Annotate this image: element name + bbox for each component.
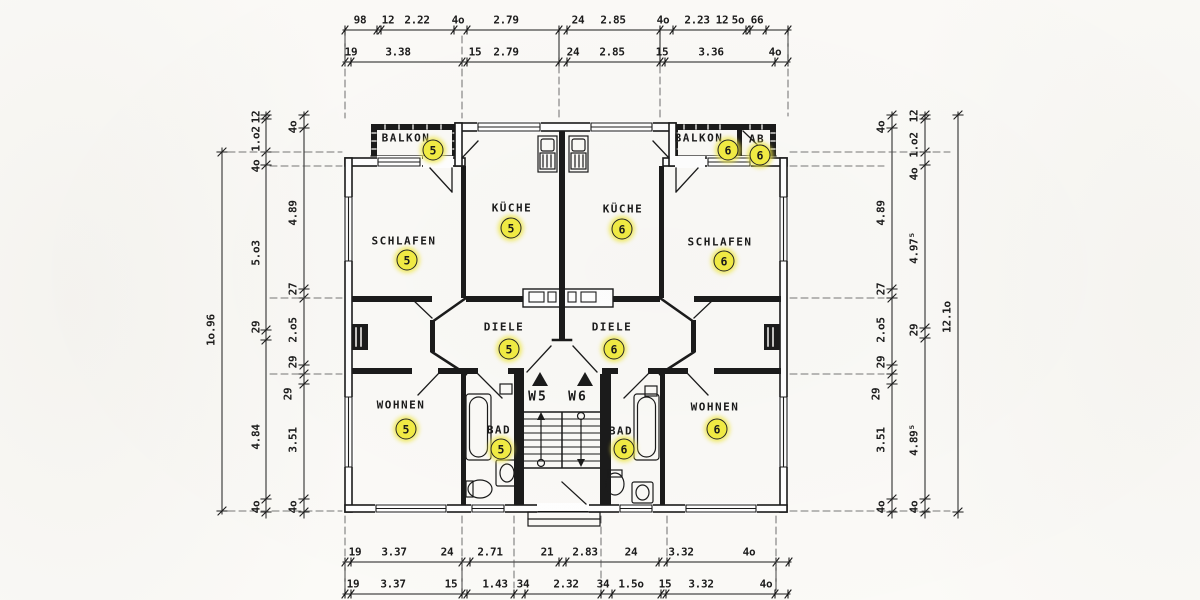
dim-label: 15 [445, 578, 458, 591]
dim-label: 29 [250, 321, 263, 334]
room-label-diele-6: DIELE [592, 321, 633, 334]
dim-label: 24 [572, 14, 585, 27]
unit-badge-kueche-6: 6 [612, 219, 633, 240]
apartment-door-label-w5: W5 [528, 390, 548, 405]
unit-badge-balkon-5: 5 [423, 140, 444, 161]
dim-label: 3.37 [380, 578, 405, 591]
dim-label: 3.32 [668, 546, 693, 559]
dim-label: 4o [760, 578, 773, 591]
dim-label: 2.o5 [287, 317, 300, 342]
floorplan-drawing [0, 0, 1200, 600]
dim-label: 2.32 [553, 578, 578, 591]
dim-label: 4o [908, 501, 921, 514]
dim-label: 1.o2 [250, 126, 263, 151]
dim-label: 2.83 [572, 546, 597, 559]
dim-label: 12 [716, 14, 729, 27]
dim-label: 34 [517, 578, 530, 591]
shaft-block [523, 289, 613, 307]
dim-label: 12 [908, 110, 921, 123]
unit-badge-diele-6: 6 [604, 339, 625, 360]
dim-label: 4o [250, 160, 263, 173]
floorplan-sheet: BALKON 5 BALKON 6 AB 6 SCHLAFEN 5 KÜCHE … [0, 0, 1200, 600]
dim-label: 15 [469, 46, 482, 59]
interior-walls [352, 131, 781, 505]
dim-label: 29 [282, 388, 295, 401]
unit-badge-schlafen-6: 6 [714, 251, 735, 272]
dim-label: 4.89 [287, 200, 300, 225]
dim-label: 21 [541, 546, 554, 559]
dim-label: 29 [875, 356, 888, 369]
dim-label: 4o [875, 121, 888, 134]
entrance-arrow-w6 [577, 372, 593, 386]
dim-label: 4o [743, 546, 756, 559]
room-label-balkon-6: BALKON [675, 132, 724, 145]
dim-label: 4o [908, 168, 921, 181]
dim-label: 3.32 [688, 578, 713, 591]
dim-label: 2.79 [493, 14, 518, 27]
dim-label: 3.38 [385, 46, 410, 59]
dim-label: 1.5o [618, 578, 643, 591]
room-label-kueche-6: KÜCHE [603, 203, 644, 216]
dim-label: 4o [875, 501, 888, 514]
dim-label: 4o [287, 501, 300, 514]
dim-label: 4.97⁵ [908, 232, 921, 264]
dim-label: 4o [657, 14, 670, 27]
dim-label: 29 [287, 356, 300, 369]
dim-label: 29 [908, 324, 921, 337]
dim-label: 3.37 [381, 546, 406, 559]
dim-label: 4.89 [875, 200, 888, 225]
room-label-balkon-5: BALKON [382, 132, 431, 145]
dim-label: 2.o5 [875, 317, 888, 342]
dim-label: 98 [354, 14, 367, 27]
unit-badge-kueche-5: 5 [501, 218, 522, 239]
unit-badge-balkon-6: 6 [718, 140, 739, 161]
room-label-kueche-5: KÜCHE [492, 202, 533, 215]
dim-label: 3.51 [875, 427, 888, 452]
dim-label: 4o [287, 121, 300, 134]
dim-label: 15 [656, 46, 669, 59]
dim-label: 19 [349, 546, 362, 559]
dim-label: 29 [870, 388, 883, 401]
dim-label: 27 [287, 283, 300, 296]
dim-label: 24 [625, 546, 638, 559]
dim-label: 12 [250, 111, 263, 124]
dim-label: 66 [751, 14, 764, 27]
unit-badge-wohnen-6: 6 [707, 419, 728, 440]
dim-label: 1.43 [482, 578, 507, 591]
staircase [524, 412, 600, 468]
dim-label: 3.51 [287, 427, 300, 452]
dim-label: 2.85 [600, 14, 625, 27]
unit-badge-bad-6: 6 [614, 439, 635, 460]
dim-label: 4o [452, 14, 465, 27]
dim-label: 15 [659, 578, 672, 591]
dim-label: 4o [769, 46, 782, 59]
room-label-wohnen-6: WOHNEN [691, 401, 740, 414]
unit-badge-diele-5: 5 [499, 339, 520, 360]
dim-label: 27 [875, 283, 888, 296]
room-label-schlafen-6: SCHLAFEN [688, 236, 753, 249]
room-label-wohnen-5: WOHNEN [377, 399, 426, 412]
windows [343, 121, 789, 514]
dim-label: 19 [345, 46, 358, 59]
apartment-door-label-w6: W6 [568, 390, 588, 405]
dim-label: 1o.96 [205, 314, 218, 346]
dim-label: 2.85 [599, 46, 624, 59]
room-label-schlafen-5: SCHLAFEN [372, 235, 437, 248]
room-label-diele-5: DIELE [484, 321, 525, 334]
unit-badge-ab-6: 6 [750, 145, 771, 166]
dim-label: 1.o2 [908, 132, 921, 157]
dim-label: 2.71 [477, 546, 502, 559]
dim-label: 24 [567, 46, 580, 59]
dim-label: 5.o3 [250, 240, 263, 265]
dim-label: 2.79 [493, 46, 518, 59]
dim-label: 3.36 [698, 46, 723, 59]
dim-label: 12 [382, 14, 395, 27]
dim-label: 2.23 [684, 14, 709, 27]
dim-label: 5o [732, 14, 745, 27]
room-label-ab-6: AB [749, 133, 765, 146]
dim-label: 4.84 [250, 424, 263, 449]
unit-badge-schlafen-5: 5 [397, 250, 418, 271]
dim-label: 19 [347, 578, 360, 591]
unit-badge-wohnen-5: 5 [396, 419, 417, 440]
dim-label: 4.89⁵ [908, 424, 921, 456]
dim-label: 34 [597, 578, 610, 591]
entrance-arrow-w5 [532, 372, 548, 386]
unit-badge-bad-5: 5 [491, 439, 512, 460]
dim-label: 2.22 [404, 14, 429, 27]
entrance-stoop [528, 512, 600, 526]
dim-label: 12.1o [941, 301, 954, 333]
dim-label: 4o [250, 501, 263, 514]
room-label-bad-6: BAD [609, 425, 633, 438]
room-label-bad-5: BAD [487, 424, 511, 437]
dim-label: 24 [441, 546, 454, 559]
